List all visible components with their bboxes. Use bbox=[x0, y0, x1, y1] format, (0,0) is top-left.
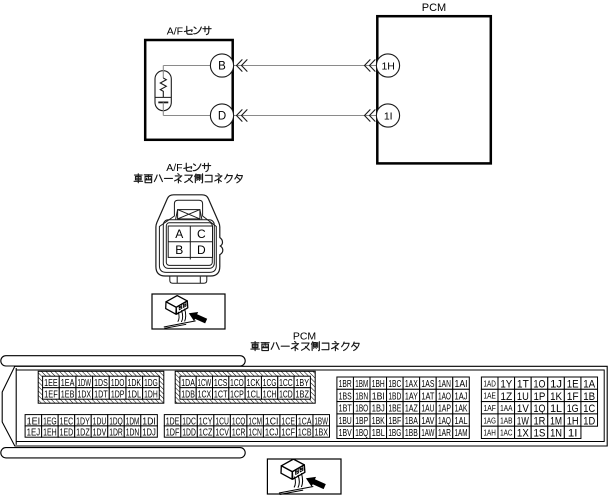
svg-text:1B: 1B bbox=[583, 391, 595, 403]
svg-text:1BD: 1BD bbox=[388, 391, 401, 402]
svg-text:1A: 1A bbox=[583, 378, 595, 390]
svg-text:1S: 1S bbox=[534, 428, 546, 440]
svg-text:1BK: 1BK bbox=[372, 416, 385, 427]
svg-text:1AV: 1AV bbox=[421, 416, 434, 427]
svg-text:1ED: 1ED bbox=[60, 428, 74, 439]
svg-text:1AB: 1AB bbox=[500, 415, 513, 425]
svg-text:1CD: 1CD bbox=[279, 390, 293, 401]
svg-text:1BR: 1BR bbox=[339, 379, 352, 390]
svg-text:1AG: 1AG bbox=[483, 415, 496, 425]
svg-text:A/F: A/F bbox=[167, 25, 183, 37]
svg-text:1DL: 1DL bbox=[127, 390, 141, 401]
svg-text:1CL: 1CL bbox=[246, 390, 260, 401]
svg-text:1AR: 1AR bbox=[438, 428, 451, 439]
svg-text:1DV: 1DV bbox=[93, 428, 107, 439]
svg-text:1CJ: 1CJ bbox=[265, 428, 279, 439]
svg-text:PCM: PCM bbox=[293, 331, 316, 343]
svg-text:C: C bbox=[197, 227, 206, 241]
svg-text:1F: 1F bbox=[567, 391, 579, 403]
svg-text:1I: 1I bbox=[568, 428, 578, 440]
svg-text:1M: 1M bbox=[550, 415, 562, 427]
svg-text:1EF: 1EF bbox=[44, 390, 58, 401]
svg-text:1G: 1G bbox=[567, 403, 579, 415]
svg-text:1AT: 1AT bbox=[421, 391, 434, 402]
svg-text:1D: 1D bbox=[583, 415, 595, 427]
svg-text:B: B bbox=[175, 243, 183, 257]
svg-text:1CV: 1CV bbox=[215, 428, 229, 439]
svg-text:1BE: 1BE bbox=[388, 404, 401, 415]
svg-text:1EH: 1EH bbox=[43, 428, 57, 439]
svg-text:1DJ: 1DJ bbox=[142, 428, 156, 439]
svg-text:1AP: 1AP bbox=[438, 404, 451, 415]
svg-text:1N: 1N bbox=[550, 428, 562, 440]
svg-text:1Q: 1Q bbox=[534, 403, 546, 415]
svg-text:1V: 1V bbox=[517, 403, 529, 415]
svg-text:1BB: 1BB bbox=[405, 428, 418, 439]
svg-text:1CT: 1CT bbox=[214, 390, 228, 401]
svg-text:1DB: 1DB bbox=[181, 390, 195, 401]
svg-text:1BX: 1BX bbox=[314, 428, 328, 439]
svg-text:1K: 1K bbox=[550, 391, 562, 403]
svg-text:1CZ: 1CZ bbox=[199, 428, 213, 439]
svg-text:1BZ: 1BZ bbox=[295, 390, 309, 401]
svg-text:1H: 1H bbox=[381, 60, 394, 72]
svg-text:1DD: 1DD bbox=[182, 428, 196, 439]
svg-text:1BJ: 1BJ bbox=[372, 404, 385, 415]
svg-text:1BI: 1BI bbox=[372, 391, 385, 402]
svg-text:1AC: 1AC bbox=[500, 428, 512, 438]
svg-text:1AH: 1AH bbox=[483, 428, 495, 438]
svg-text:1BO: 1BO bbox=[355, 404, 368, 415]
svg-text:1CH: 1CH bbox=[263, 390, 277, 401]
svg-text:1BA: 1BA bbox=[405, 416, 418, 427]
svg-text:1AU: 1AU bbox=[421, 404, 434, 415]
svg-text:1BQ: 1BQ bbox=[355, 428, 368, 439]
svg-text:1X: 1X bbox=[517, 428, 529, 440]
svg-text:1BP: 1BP bbox=[355, 416, 368, 427]
svg-text:1AL: 1AL bbox=[455, 416, 468, 427]
svg-text:1O: 1O bbox=[534, 378, 546, 390]
svg-text:1AO: 1AO bbox=[438, 391, 451, 402]
svg-text:1BV: 1BV bbox=[339, 428, 352, 439]
svg-text:1BF: 1BF bbox=[388, 416, 401, 427]
svg-text:1R: 1R bbox=[534, 415, 546, 427]
svg-text:1DF: 1DF bbox=[166, 428, 180, 439]
svg-text:1T: 1T bbox=[517, 378, 529, 390]
svg-text:1DT: 1DT bbox=[94, 390, 108, 401]
svg-text:1AN: 1AN bbox=[438, 379, 451, 390]
svg-text:1CR: 1CR bbox=[232, 428, 246, 439]
svg-text:1I: 1I bbox=[384, 110, 393, 122]
svg-text:1BS: 1BS bbox=[339, 391, 352, 402]
svg-text:1DX: 1DX bbox=[77, 390, 91, 401]
svg-text:1AX: 1AX bbox=[405, 379, 418, 390]
svg-text:1AD: 1AD bbox=[483, 378, 495, 388]
svg-text:1AJ: 1AJ bbox=[455, 391, 468, 402]
svg-text:PCM: PCM bbox=[422, 2, 446, 14]
svg-text:1AE: 1AE bbox=[483, 391, 496, 401]
svg-text:1DN: 1DN bbox=[126, 428, 140, 439]
svg-text:1AA: 1AA bbox=[500, 403, 513, 413]
svg-text:1P: 1P bbox=[534, 391, 546, 403]
svg-text:1CF: 1CF bbox=[281, 428, 295, 439]
svg-text:1BH: 1BH bbox=[372, 379, 385, 390]
svg-text:1CB: 1CB bbox=[298, 428, 312, 439]
svg-text:1CX: 1CX bbox=[198, 390, 212, 401]
svg-text:1U: 1U bbox=[517, 391, 529, 403]
svg-text:1AZ: 1AZ bbox=[405, 404, 418, 415]
svg-text:1BM: 1BM bbox=[355, 379, 368, 390]
svg-text:1C: 1C bbox=[583, 403, 595, 415]
svg-text:1DP: 1DP bbox=[111, 390, 125, 401]
svg-text:1Y: 1Y bbox=[500, 378, 512, 390]
svg-text:1CP: 1CP bbox=[230, 390, 244, 401]
svg-text:1EB: 1EB bbox=[61, 390, 75, 401]
svg-text:1AF: 1AF bbox=[483, 403, 495, 413]
svg-text:1AW: 1AW bbox=[421, 428, 435, 439]
svg-text:A/F: A/F bbox=[166, 162, 182, 174]
svg-text:1BL: 1BL bbox=[372, 428, 385, 439]
svg-text:1CN: 1CN bbox=[248, 428, 262, 439]
svg-text:1DZ: 1DZ bbox=[76, 428, 90, 439]
svg-text:1BC: 1BC bbox=[388, 379, 401, 390]
svg-text:B: B bbox=[218, 61, 226, 73]
svg-text:1AK: 1AK bbox=[455, 404, 468, 415]
svg-text:1BG: 1BG bbox=[388, 428, 401, 439]
svg-text:1AQ: 1AQ bbox=[438, 416, 451, 427]
svg-text:1L: 1L bbox=[550, 403, 562, 415]
svg-text:A: A bbox=[175, 227, 183, 241]
svg-text:1DH: 1DH bbox=[144, 390, 158, 401]
svg-text:1W: 1W bbox=[517, 415, 529, 427]
svg-text:1BT: 1BT bbox=[339, 404, 352, 415]
svg-text:1E: 1E bbox=[567, 378, 579, 390]
svg-text:1BN: 1BN bbox=[355, 391, 368, 402]
svg-text:1AM: 1AM bbox=[455, 428, 468, 439]
svg-text:D: D bbox=[218, 111, 226, 123]
svg-text:1AY: 1AY bbox=[405, 391, 418, 402]
svg-text:D: D bbox=[197, 243, 206, 257]
svg-text:1EJ: 1EJ bbox=[27, 428, 41, 439]
svg-text:1AS: 1AS bbox=[421, 379, 434, 390]
svg-text:1Z: 1Z bbox=[500, 391, 512, 403]
svg-text:1BU: 1BU bbox=[339, 416, 352, 427]
svg-text:1J: 1J bbox=[550, 378, 562, 390]
svg-text:1H: 1H bbox=[567, 415, 579, 427]
svg-text:1AI: 1AI bbox=[455, 379, 468, 390]
svg-text:1DR: 1DR bbox=[109, 428, 123, 439]
